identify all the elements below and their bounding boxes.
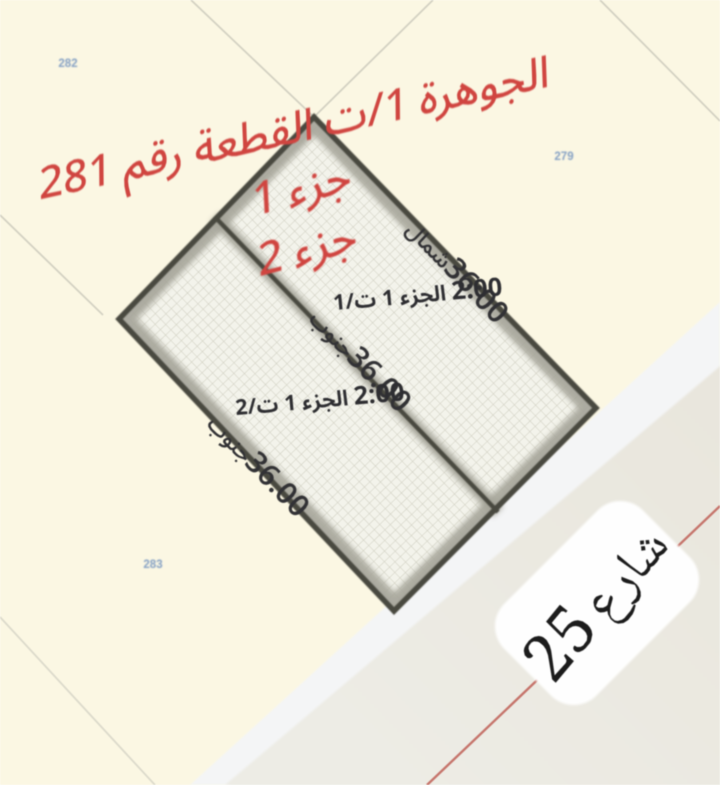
svg-text:283: 283: [143, 559, 162, 571]
svg-text:279: 279: [554, 151, 573, 163]
svg-text:282: 282: [58, 58, 77, 70]
